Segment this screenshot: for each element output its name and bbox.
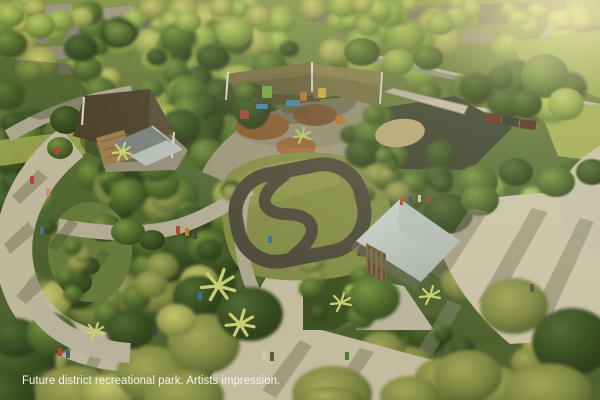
svg-text:Future district recreational p: Future district recreational park. Artis… [22, 375, 280, 387]
